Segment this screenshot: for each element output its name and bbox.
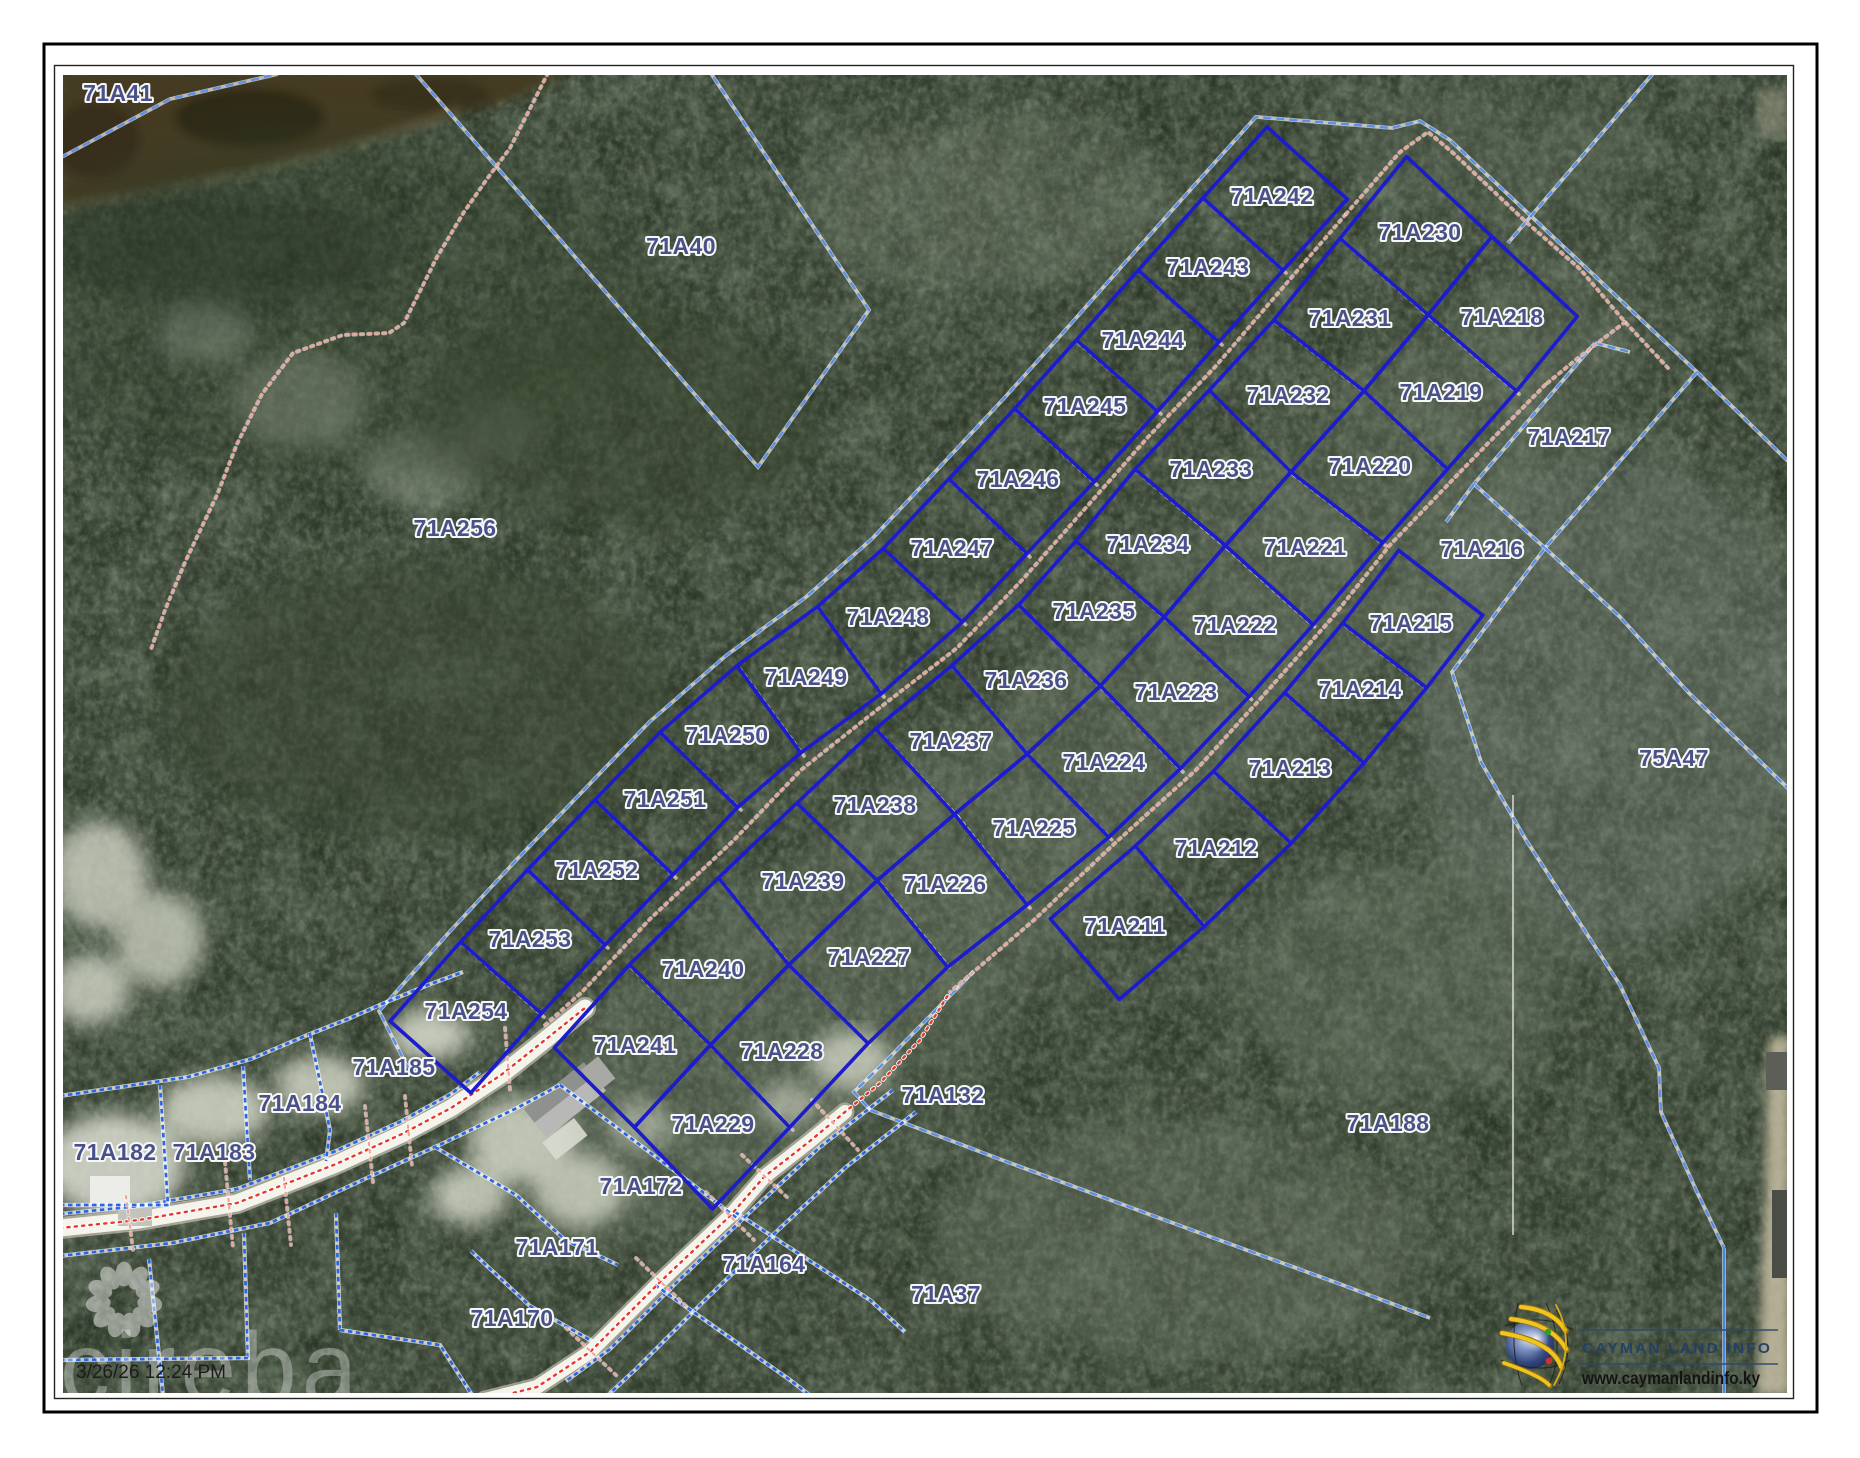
svg-text:71A132: 71A132 xyxy=(902,1082,985,1108)
svg-text:71A229: 71A229 xyxy=(672,1111,755,1137)
svg-text:71A223: 71A223 xyxy=(1135,679,1218,705)
svg-text:71A171: 71A171 xyxy=(516,1234,599,1260)
svg-text:71A211: 71A211 xyxy=(1084,913,1166,939)
svg-text:71A185: 71A185 xyxy=(353,1054,436,1080)
svg-text:71A231: 71A231 xyxy=(1309,305,1392,331)
svg-text:71A238: 71A238 xyxy=(834,792,917,818)
svg-text:71A228: 71A228 xyxy=(741,1038,824,1064)
svg-text:www.caymanlandinfo.ky: www.caymanlandinfo.ky xyxy=(1581,1368,1760,1388)
svg-text:71A170: 71A170 xyxy=(471,1305,554,1331)
svg-text:71A244: 71A244 xyxy=(1102,327,1185,353)
svg-text:71A252: 71A252 xyxy=(556,857,639,883)
svg-text:71A253: 71A253 xyxy=(489,926,572,952)
svg-text:71A188: 71A188 xyxy=(1347,1110,1430,1136)
svg-text:71A249: 71A249 xyxy=(765,664,848,690)
svg-text:71A232: 71A232 xyxy=(1247,382,1330,408)
svg-text:CAYMAN LAND INFO: CAYMAN LAND INFO xyxy=(1582,1340,1772,1357)
svg-text:71A256: 71A256 xyxy=(414,515,497,541)
svg-text:71A245: 71A245 xyxy=(1044,393,1127,419)
svg-text:71A248: 71A248 xyxy=(847,604,930,630)
svg-text:71A224: 71A224 xyxy=(1063,749,1146,775)
svg-text:71A251: 71A251 xyxy=(624,786,707,812)
svg-text:71A41: 71A41 xyxy=(83,80,153,106)
svg-text:71A227: 71A227 xyxy=(828,944,911,970)
svg-text:71A230: 71A230 xyxy=(1379,219,1462,245)
svg-text:71A216: 71A216 xyxy=(1441,536,1524,562)
svg-text:71A220: 71A220 xyxy=(1329,453,1412,479)
svg-text:71A221: 71A221 xyxy=(1264,534,1347,560)
svg-text:71A215: 71A215 xyxy=(1370,610,1453,636)
svg-text:71A247: 71A247 xyxy=(911,535,994,561)
svg-text:71A250: 71A250 xyxy=(686,722,769,748)
svg-text:71A237: 71A237 xyxy=(910,728,993,754)
svg-text:71A222: 71A222 xyxy=(1194,612,1277,638)
svg-text:71A212: 71A212 xyxy=(1175,835,1258,861)
svg-text:71A214: 71A214 xyxy=(1319,676,1402,702)
svg-text:71A241: 71A241 xyxy=(594,1032,677,1058)
svg-text:71A37: 71A37 xyxy=(911,1281,981,1307)
svg-text:71A225: 71A225 xyxy=(993,815,1076,841)
svg-text:71A226: 71A226 xyxy=(904,871,987,897)
svg-text:71A213: 71A213 xyxy=(1249,755,1332,781)
svg-text:71A235: 71A235 xyxy=(1053,598,1136,624)
svg-text:71A40: 71A40 xyxy=(646,233,716,259)
svg-text:71A164: 71A164 xyxy=(723,1251,806,1277)
svg-text:71A240: 71A240 xyxy=(662,956,745,982)
svg-text:71A233: 71A233 xyxy=(1170,456,1253,482)
svg-text:71A184: 71A184 xyxy=(259,1090,342,1116)
svg-text:71A219: 71A219 xyxy=(1400,379,1483,405)
svg-text:3/26/26 12:24 PM: 3/26/26 12:24 PM xyxy=(76,1362,226,1383)
svg-text:71A239: 71A239 xyxy=(762,868,845,894)
svg-text:71A236: 71A236 xyxy=(985,667,1068,693)
svg-text:71A182: 71A182 xyxy=(74,1139,157,1165)
svg-text:71A218: 71A218 xyxy=(1461,304,1544,330)
svg-text:71A217: 71A217 xyxy=(1528,424,1611,450)
svg-text:75A47: 75A47 xyxy=(1639,745,1709,771)
svg-text:71A246: 71A246 xyxy=(977,466,1060,492)
svg-text:71A242: 71A242 xyxy=(1231,183,1314,209)
svg-text:71A234: 71A234 xyxy=(1107,531,1190,557)
svg-text:71A254: 71A254 xyxy=(425,998,508,1024)
svg-text:71A172: 71A172 xyxy=(600,1173,683,1199)
svg-text:71A183: 71A183 xyxy=(173,1139,256,1165)
svg-text:71A243: 71A243 xyxy=(1167,254,1250,280)
